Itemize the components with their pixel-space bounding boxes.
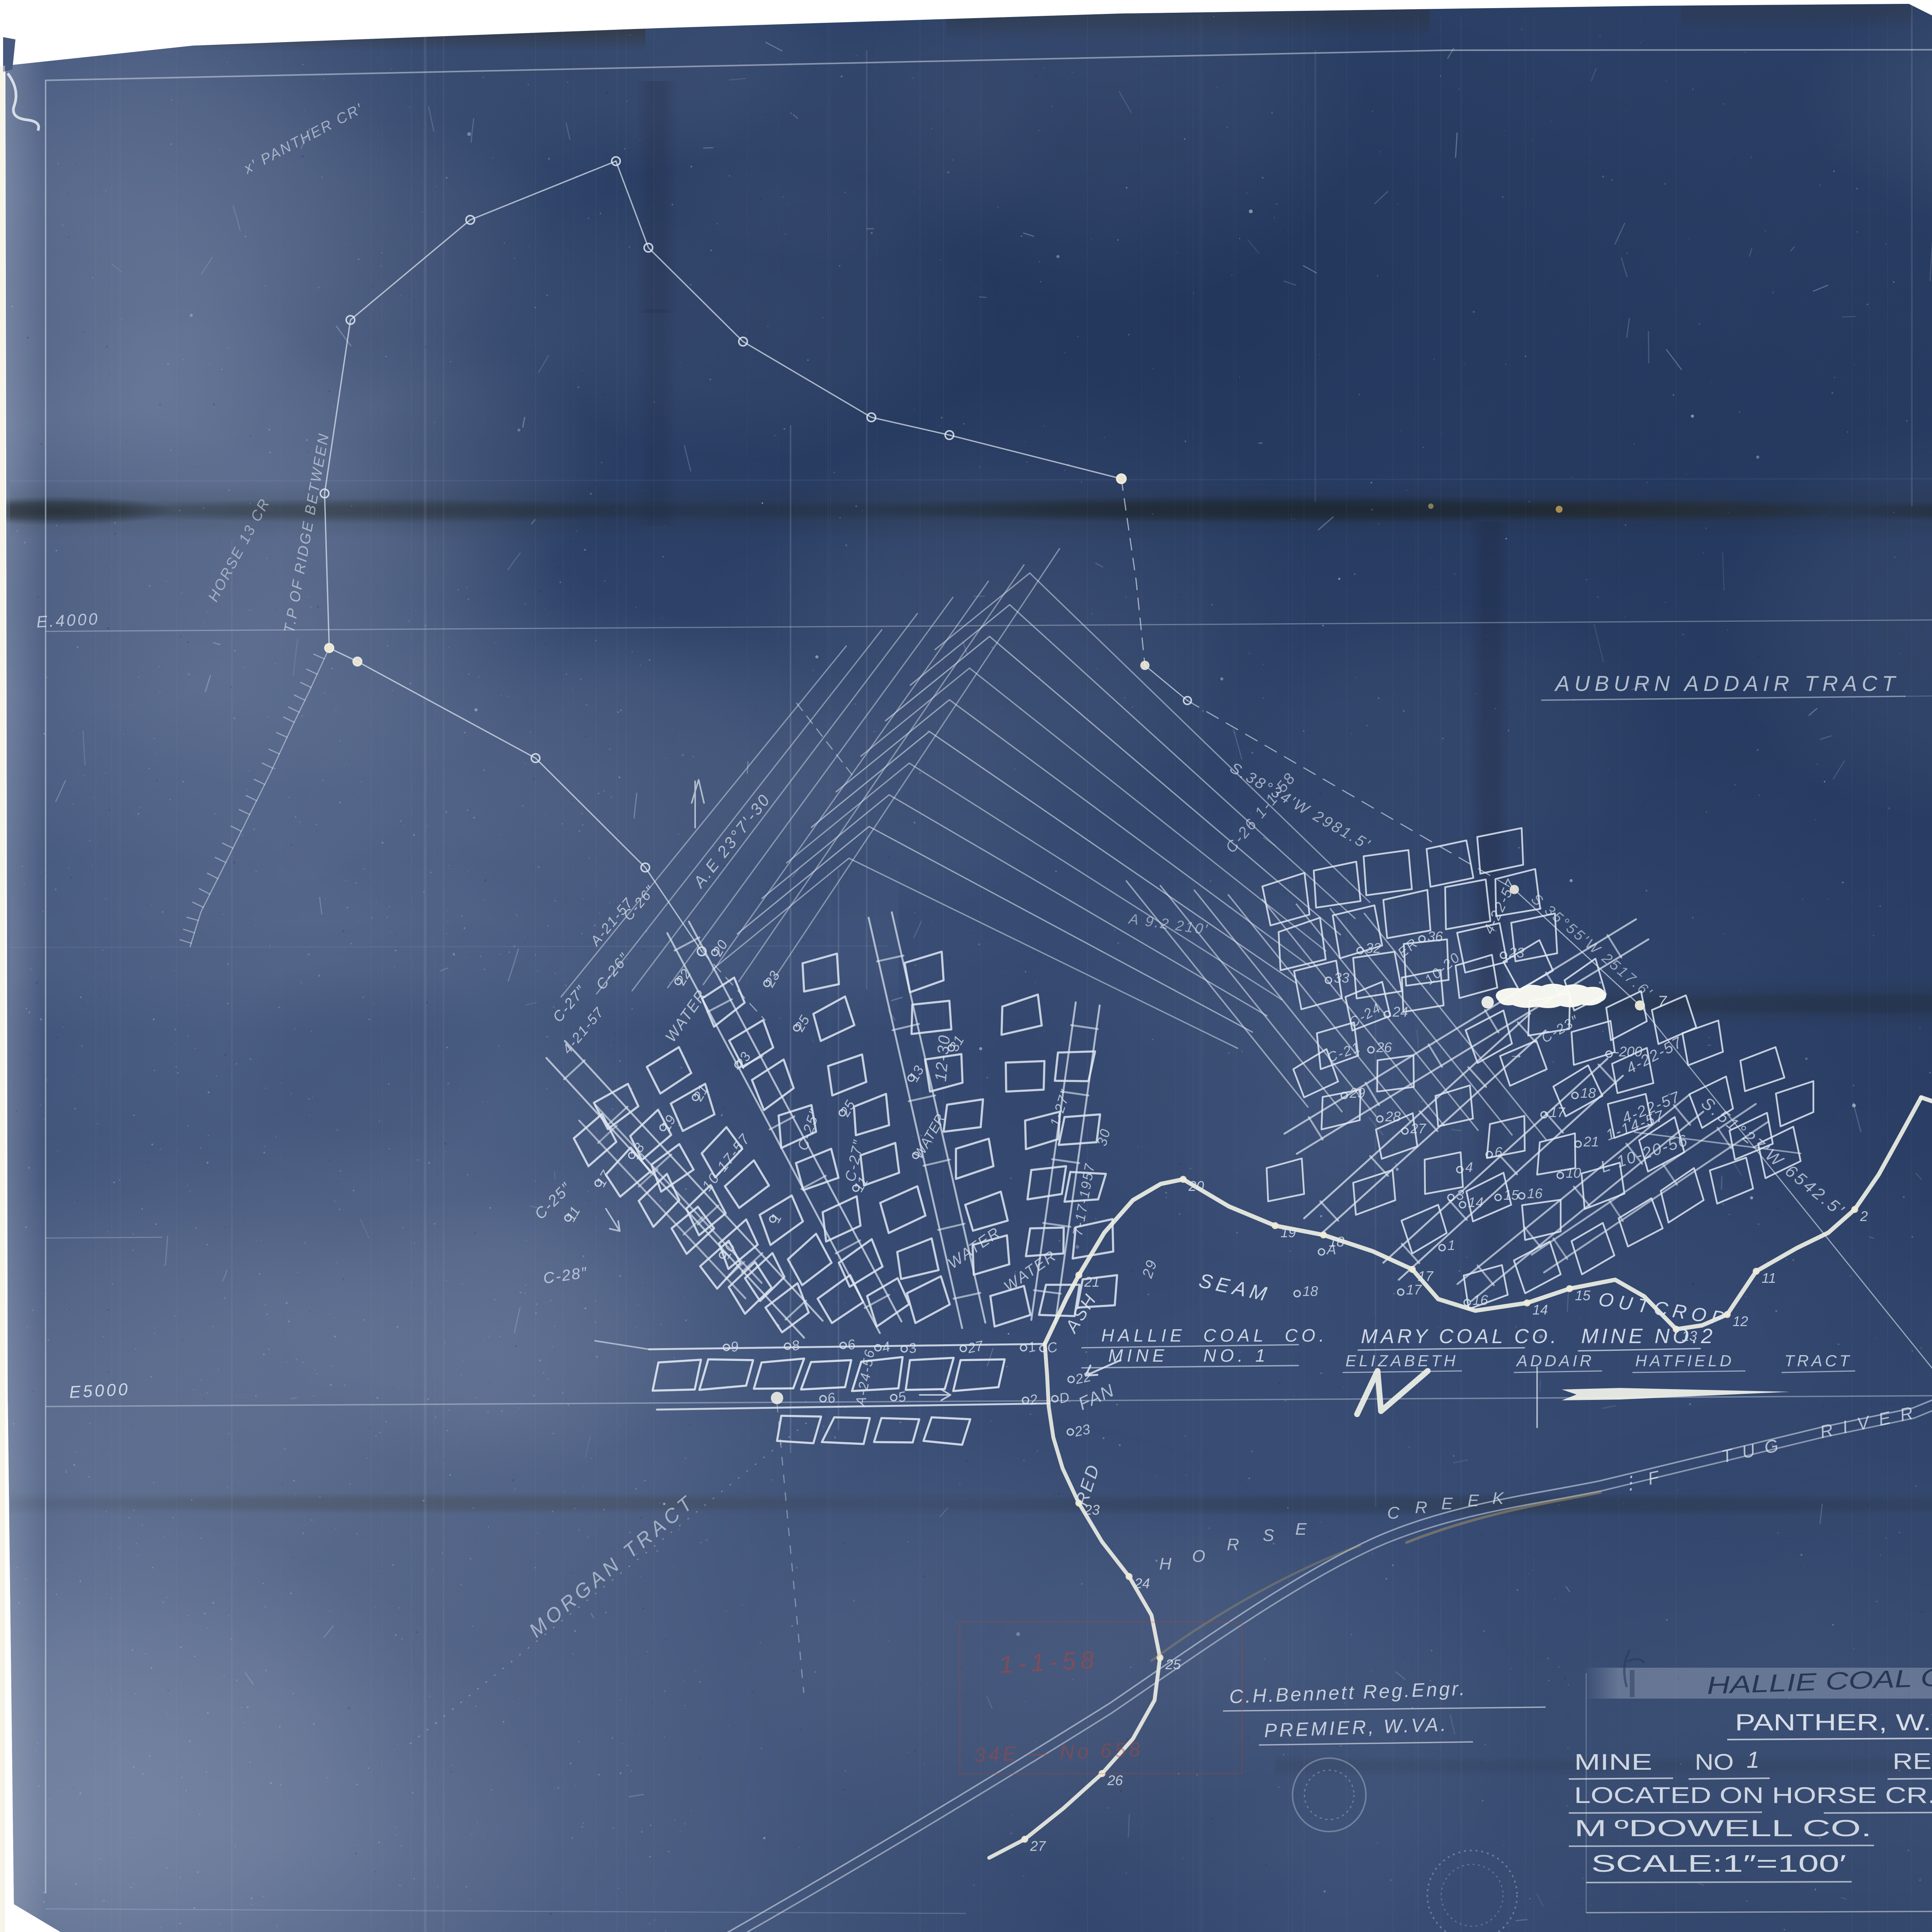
svg-text:14: 14 xyxy=(1468,1194,1483,1210)
svg-text:21: 21 xyxy=(1084,1274,1100,1290)
svg-text:28: 28 xyxy=(1385,1109,1401,1124)
svg-text:26: 26 xyxy=(1107,1772,1123,1788)
svg-text:32: 32 xyxy=(1366,940,1381,956)
svg-text:O: O xyxy=(1192,1547,1205,1566)
svg-text:12: 12 xyxy=(1733,1313,1748,1329)
svg-text:3: 3 xyxy=(1456,1187,1464,1203)
svg-text:1-1-58: 1-1-58 xyxy=(999,1646,1099,1679)
svg-text:36: 36 xyxy=(1427,929,1443,944)
svg-text:29: 29 xyxy=(1349,1085,1365,1101)
svg-text:22: 22 xyxy=(1073,1368,1092,1387)
svg-text:33: 33 xyxy=(1334,970,1349,986)
svg-text:27: 27 xyxy=(1030,1838,1046,1854)
svg-text:6: 6 xyxy=(1495,1144,1503,1160)
svg-text:S: S xyxy=(1263,1526,1274,1545)
svg-text:LOCATED ON HORSE CR.: LOCATED ON HORSE CR. xyxy=(1574,1783,1932,1808)
svg-text:R: R xyxy=(1227,1535,1239,1554)
svg-text:E.4000: E.4000 xyxy=(36,610,100,631)
svg-text:17: 17 xyxy=(1549,1104,1566,1120)
svg-text:21: 21 xyxy=(1583,1134,1599,1150)
svg-text:16: 16 xyxy=(1527,1185,1543,1201)
svg-text:ADDAIR: ADDAIR xyxy=(1515,1352,1594,1370)
svg-text:23: 23 xyxy=(1509,945,1524,961)
svg-text:18: 18 xyxy=(1580,1085,1596,1101)
svg-text:H: H xyxy=(1159,1554,1172,1573)
svg-text:15: 15 xyxy=(1503,1187,1519,1203)
svg-text:AUBURN ADDAIR TRACT: AUBURN ADDAIR TRACT xyxy=(1554,671,1900,696)
svg-text:11: 11 xyxy=(1762,1270,1776,1286)
svg-text:RED ASH SEAM: RED ASH SEAM xyxy=(1893,1749,1932,1774)
svg-text:18: 18 xyxy=(1303,1283,1318,1299)
svg-text:C: C xyxy=(1387,1503,1400,1522)
svg-text:TRACT: TRACT xyxy=(1784,1352,1852,1370)
svg-text:ELIZABETH: ELIZABETH xyxy=(1345,1352,1458,1370)
svg-text:24: 24 xyxy=(1392,1004,1408,1020)
svg-text:2: 2 xyxy=(1860,1208,1868,1224)
svg-text:E: E xyxy=(1295,1520,1307,1539)
svg-text:1: 1 xyxy=(1447,1237,1455,1253)
svg-text:16: 16 xyxy=(1473,1292,1488,1308)
svg-text:14: 14 xyxy=(1532,1302,1548,1318)
svg-text:E5000: E5000 xyxy=(69,1380,131,1402)
svg-text:HATFIELD: HATFIELD xyxy=(1635,1352,1734,1370)
svg-text:PANTHER, W.VA.: PANTHER, W.VA. xyxy=(1735,1709,1932,1735)
svg-text:NO: NO xyxy=(1695,1750,1734,1775)
svg-text:M ºDOWELL CO.: M ºDOWELL CO. xyxy=(1574,1815,1872,1841)
svg-text:19: 19 xyxy=(1281,1225,1296,1240)
svg-text:24: 24 xyxy=(1134,1575,1150,1591)
svg-text:10: 10 xyxy=(1566,1165,1581,1181)
svg-text:MINE NO. 1: MINE NO. 1 xyxy=(1108,1345,1269,1366)
svg-text:18: 18 xyxy=(1329,1234,1344,1250)
svg-text:17: 17 xyxy=(1418,1268,1434,1284)
svg-text:MARY COAL CO.: MARY COAL CO. xyxy=(1361,1325,1559,1348)
svg-text:23: 23 xyxy=(1073,1421,1092,1440)
svg-text:4: 4 xyxy=(1465,1159,1473,1175)
svg-text:MINE NO.2: MINE NO.2 xyxy=(1581,1325,1716,1348)
svg-text:20: 20 xyxy=(1188,1178,1204,1194)
svg-text:K: K xyxy=(1492,1489,1504,1508)
svg-text:R: R xyxy=(1415,1498,1427,1517)
svg-text:→: → xyxy=(1509,1046,1525,1062)
svg-text:17: 17 xyxy=(1406,1282,1422,1298)
svg-text:27: 27 xyxy=(1410,1121,1427,1136)
svg-text:15: 15 xyxy=(1575,1287,1591,1303)
svg-text:HALLIE COAL CO.: HALLIE COAL CO. xyxy=(1101,1325,1328,1345)
svg-text:26: 26 xyxy=(1376,1039,1392,1055)
svg-text:E: E xyxy=(1468,1491,1479,1510)
svg-text:1: 1 xyxy=(1747,1747,1759,1773)
svg-text:E: E xyxy=(1441,1494,1453,1513)
svg-text:SCALE:1″=100′: SCALE:1″=100′ xyxy=(1591,1850,1846,1877)
